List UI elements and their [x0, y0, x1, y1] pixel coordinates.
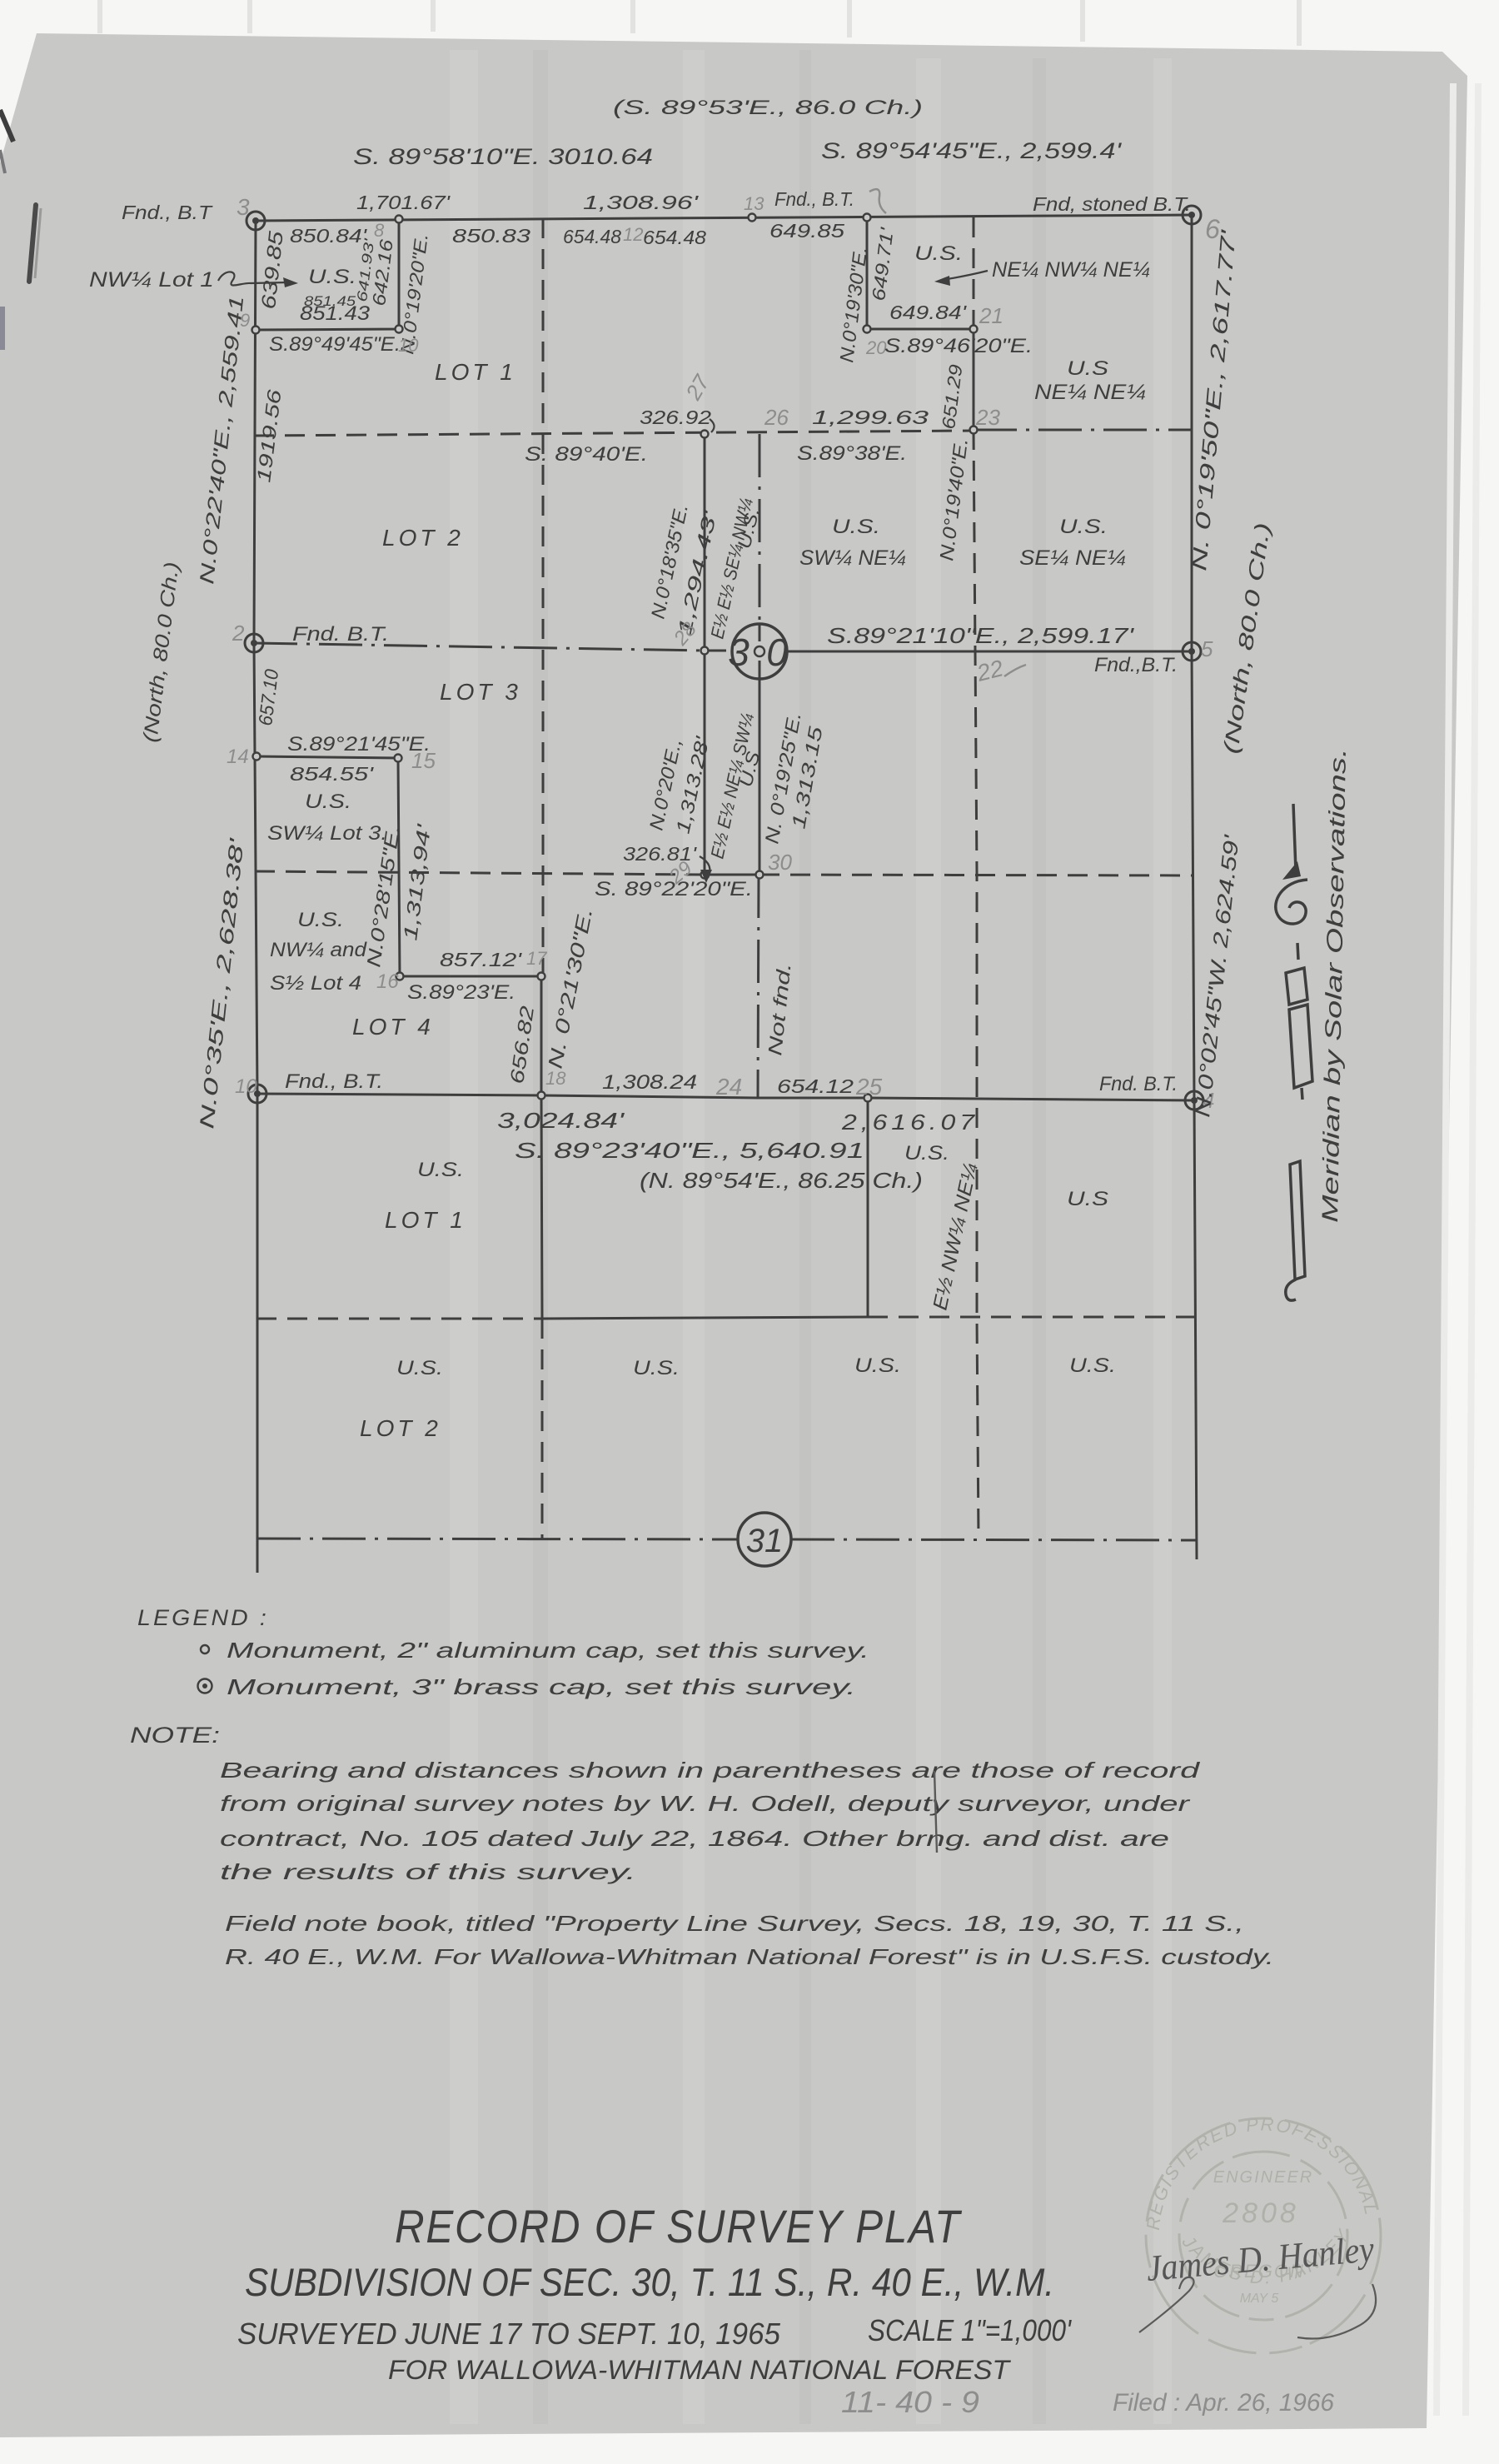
svg-text:Fnd., B.T.: Fnd., B.T.: [774, 188, 854, 210]
svg-text:649.84': 649.84': [889, 302, 968, 323]
svg-text:SURVEYED JUNE 17 TO SEPT. 10,: SURVEYED JUNE 17 TO SEPT. 10, 1965: [237, 2317, 781, 2351]
svg-text:2808: 2808: [1222, 2197, 1299, 2229]
svg-text:15: 15: [411, 748, 436, 773]
svg-text:SW¼ NE¼: SW¼ NE¼: [799, 546, 906, 570]
svg-text:S. 89°54'45"E., 2,599.4': S. 89°54'45"E., 2,599.4': [821, 138, 1122, 163]
svg-text:S.89°23'E.: S.89°23'E.: [407, 981, 515, 1004]
svg-text:SW¼ Lot 3.: SW¼ Lot 3.: [267, 822, 387, 845]
svg-text:MAY 5: MAY 5: [1240, 2292, 1279, 2306]
svg-text:26: 26: [764, 405, 789, 430]
svg-text:U.S.: U.S.: [305, 791, 351, 813]
svg-text:(N. 89°54'E., 86.25 Ch.): (N. 89°54'E., 86.25 Ch.): [640, 1168, 923, 1193]
svg-text:RECORD OF SURVEY PLAT: RECORD OF SURVEY PLAT: [395, 2200, 963, 2252]
svg-text:U.S: U.S: [1067, 1188, 1108, 1210]
svg-text:Fnd., B.T.: Fnd., B.T.: [285, 1070, 383, 1093]
svg-text:ENGINEER: ENGINEER: [1213, 2168, 1313, 2187]
svg-text:17: 17: [526, 948, 547, 969]
svg-text:13: 13: [744, 193, 764, 214]
svg-text:21: 21: [979, 303, 1003, 328]
svg-text:U.S.: U.S.: [914, 242, 963, 265]
svg-text:857.12': 857.12': [440, 949, 523, 970]
svg-text:850.84': 850.84': [290, 225, 368, 247]
svg-text:U.S.: U.S.: [417, 1159, 464, 1181]
svg-text:Fnd. B.T.: Fnd. B.T.: [1099, 1073, 1178, 1095]
svg-text:U.S: U.S: [1067, 357, 1108, 380]
svg-text:U.S.: U.S.: [1069, 1354, 1116, 1377]
svg-text:NE¼ NE¼: NE¼ NE¼: [1034, 381, 1146, 404]
svg-text:SE¼ NE¼: SE¼ NE¼: [1019, 546, 1126, 570]
svg-text:U.S.: U.S.: [297, 909, 344, 931]
svg-text:24: 24: [715, 1074, 742, 1100]
svg-text:25: 25: [855, 1074, 883, 1100]
svg-text:U.S.: U.S.: [832, 516, 880, 538]
svg-text:(S. 89°53'E., 86.0 Ch.): (S. 89°53'E., 86.0 Ch.): [613, 97, 923, 119]
svg-text:14: 14: [227, 746, 249, 768]
svg-text:Field note book, titled "Prope: Field note book, titled "Property Line S…: [225, 1911, 1244, 1936]
svg-text:NW¼ and: NW¼ and: [270, 939, 367, 961]
svg-text:10: 10: [235, 1075, 257, 1098]
svg-text:S. 89°23'40"E., 5,640.91: S. 89°23'40"E., 5,640.91: [515, 1138, 864, 1163]
svg-text:U.S.: U.S.: [633, 1357, 680, 1379]
svg-text:S.89°46'20"E.: S.89°46'20"E.: [884, 335, 1033, 357]
svg-text:LOT 1: LOT 1: [435, 359, 516, 385]
svg-text:Fnd. B.T.: Fnd. B.T.: [292, 623, 389, 646]
svg-text:S. 89°40'E.: S. 89°40'E.: [525, 443, 648, 466]
svg-text:654.12: 654.12: [777, 1075, 854, 1097]
svg-text:18: 18: [545, 1068, 566, 1089]
svg-text:S.89°49'45"E.: S.89°49'45"E.: [269, 333, 401, 356]
svg-text:3: 3: [237, 194, 250, 220]
svg-text:S. 89°58'10"E. 3010.64: S. 89°58'10"E. 3010.64: [353, 144, 653, 169]
svg-text:the results of this survey.: the results of this survey.: [220, 1859, 636, 1884]
svg-text:3,024.84': 3,024.84': [497, 1108, 625, 1133]
svg-text:contract, No. 105 dated July 2: contract, No. 105 dated July 22, 1864. O…: [220, 1826, 1169, 1851]
svg-text:854.55': 854.55': [290, 763, 375, 785]
svg-text:30: 30: [768, 850, 792, 875]
svg-text:8: 8: [374, 220, 385, 241]
svg-text:850.83: 850.83: [452, 225, 530, 247]
svg-text:12: 12: [623, 224, 643, 245]
svg-text:326.81': 326.81': [623, 843, 698, 865]
svg-text:NW¼ Lot 1: NW¼ Lot 1: [89, 268, 214, 292]
svg-text:16: 16: [376, 970, 399, 993]
svg-text:LOT 2: LOT 2: [382, 525, 464, 551]
svg-text:Fnd., B.T: Fnd., B.T: [122, 202, 213, 223]
svg-text:Fnd.,B.T.: Fnd.,B.T.: [1094, 654, 1178, 676]
svg-text:SUBDIVISION OF SEC. 30, T. 11: SUBDIVISION OF SEC. 30, T. 11 S., R. 40 …: [245, 2260, 1054, 2304]
svg-text:FOR WALLOWA-WHITMAN NATIONAL F: FOR WALLOWA-WHITMAN NATIONAL FOREST: [388, 2355, 1012, 2385]
svg-text:LOT 1: LOT 1: [385, 1207, 466, 1233]
svg-text:LOT 2: LOT 2: [360, 1415, 441, 1441]
svg-text:U.S.: U.S.: [396, 1357, 443, 1379]
svg-text:0: 0: [766, 631, 788, 674]
svg-text:654.48: 654.48: [643, 227, 706, 248]
svg-text:649.85: 649.85: [769, 220, 844, 242]
svg-text:NOTE:: NOTE:: [130, 1723, 220, 1748]
svg-text:5: 5: [1201, 636, 1213, 661]
svg-text:U.S.: U.S.: [308, 266, 356, 288]
svg-text:U.S.: U.S.: [854, 1354, 901, 1377]
svg-text:31: 31: [746, 1523, 784, 1559]
svg-text:S.89°21'45"E.: S.89°21'45"E.: [287, 733, 431, 756]
svg-text:Monument, 2" aluminum cap, set: Monument, 2" aluminum cap, set this surv…: [227, 1638, 869, 1663]
svg-text:LOT 3: LOT 3: [440, 679, 521, 705]
svg-text:S.89°21'10"E., 2,599.17': S.89°21'10"E., 2,599.17': [827, 623, 1134, 648]
svg-text:1,701.67': 1,701.67': [356, 192, 451, 213]
svg-text:851.43: 851.43: [300, 302, 371, 325]
svg-text:from original survey notes by: from original survey notes by W. H. Odel…: [220, 1791, 1191, 1816]
svg-text:Bearing and distances shown in: Bearing and distances shown in parenthes…: [220, 1758, 1201, 1783]
svg-text:LEGEND :: LEGEND :: [137, 1605, 269, 1630]
svg-text:Fnd, stoned B.T.: Fnd, stoned B.T.: [1033, 193, 1191, 215]
svg-text:U.S.: U.S.: [904, 1142, 949, 1165]
svg-text:S. 89°22'20"E.: S. 89°22'20"E.: [595, 878, 753, 900]
svg-text:S½ Lot 4: S½ Lot 4: [270, 972, 361, 995]
svg-text:Filed : Apr. 26, 1966: Filed : Apr. 26, 1966: [1113, 2389, 1334, 2417]
svg-text:LOT 4: LOT 4: [352, 1014, 434, 1040]
svg-text:326.92: 326.92: [640, 407, 711, 428]
svg-text:1,299.63: 1,299.63: [812, 407, 929, 428]
svg-text:11- 40 - 9: 11- 40 - 9: [841, 2385, 979, 2419]
svg-text:R. 40 E., W.M. For Wallowa-Whi: R. 40 E., W.M. For Wallowa-Whitman Natio…: [225, 1944, 1274, 1969]
svg-text:2,616.07: 2,616.07: [841, 1110, 979, 1135]
svg-text:NE¼ NW¼ NE¼: NE¼ NW¼ NE¼: [992, 258, 1150, 282]
svg-text:1,308.96': 1,308.96': [583, 192, 700, 213]
svg-text:2: 2: [232, 621, 245, 646]
svg-text:S.89°38'E.: S.89°38'E.: [797, 442, 907, 465]
svg-text:3: 3: [728, 631, 749, 674]
svg-text:23: 23: [975, 405, 1000, 430]
svg-text:SCALE 1"=1,000': SCALE 1"=1,000': [868, 2313, 1072, 2347]
svg-text:654.48: 654.48: [563, 226, 621, 247]
svg-text:10: 10: [398, 335, 419, 356]
svg-text:U.S.: U.S.: [1059, 516, 1108, 538]
svg-text:Monument, 3" brass cap, set th: Monument, 3" brass cap, set this survey.: [227, 1674, 856, 1699]
svg-text:1,308.24: 1,308.24: [602, 1071, 697, 1094]
